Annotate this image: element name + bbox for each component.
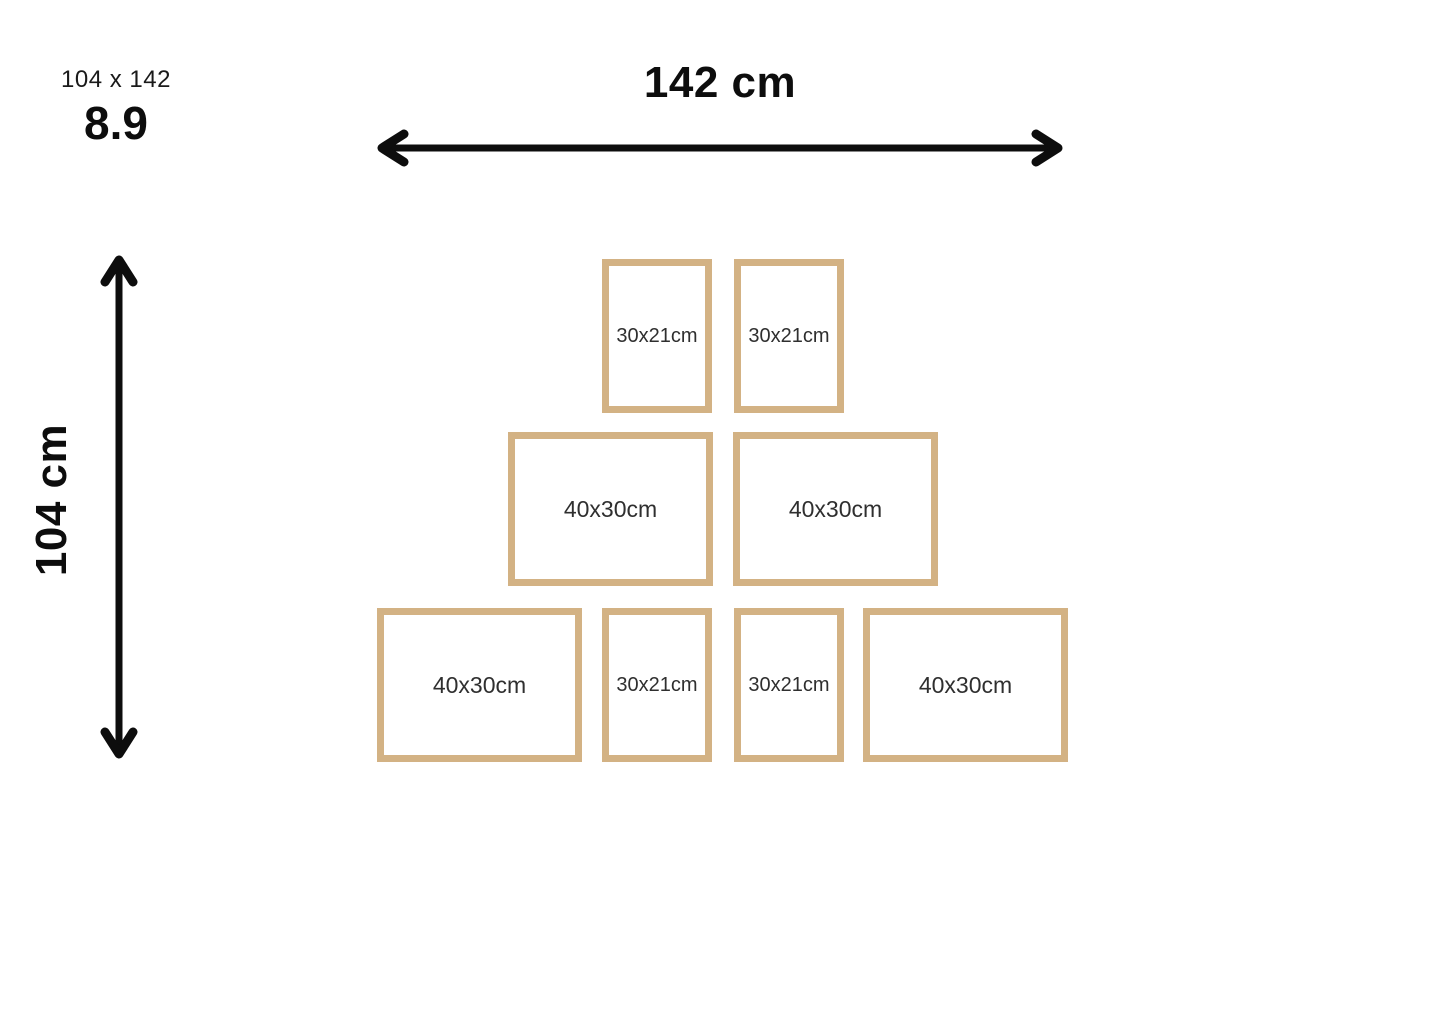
width-dimension-label: 142 cm: [520, 58, 920, 108]
frame-40x30-middle-right: 40x30cm: [733, 432, 938, 586]
size-summary: 104 x 142: [30, 66, 202, 94]
frame-30x21-bottom-center-left: 30x21cm: [602, 608, 712, 762]
frame-size-label: 30x21cm: [748, 325, 829, 348]
frame-40x30-bottom-left: 40x30cm: [377, 608, 582, 762]
frame-size-label: 40x30cm: [433, 672, 526, 699]
frame-size-label: 40x30cm: [789, 496, 882, 523]
height-dimension-label: 104 cm: [22, 380, 82, 620]
corner-summary-block: 104 x 142 8.9: [30, 66, 202, 150]
frame-30x21-bottom-center-right: 30x21cm: [734, 608, 844, 762]
height-dimension-arrow-icon: [97, 250, 141, 764]
frame-size-label: 40x30cm: [564, 496, 657, 523]
frame-size-label: 30x21cm: [616, 325, 697, 348]
frame-40x30-middle-left: 40x30cm: [508, 432, 713, 586]
width-dimension-arrow-icon: [372, 126, 1068, 170]
frame-40x30-bottom-right: 40x30cm: [863, 608, 1068, 762]
frame-30x21-top-left: 30x21cm: [602, 259, 712, 413]
frame-size-label: 30x21cm: [616, 674, 697, 697]
frame-30x21-top-right: 30x21cm: [734, 259, 844, 413]
gallery-wall-size-diagram: 104 x 142 8.9 142 cm 104 cm 30x21cm 30x2…: [0, 0, 1445, 1022]
rating-value: 8.9: [30, 96, 202, 150]
frame-size-label: 40x30cm: [919, 672, 1012, 699]
frame-size-label: 30x21cm: [748, 674, 829, 697]
